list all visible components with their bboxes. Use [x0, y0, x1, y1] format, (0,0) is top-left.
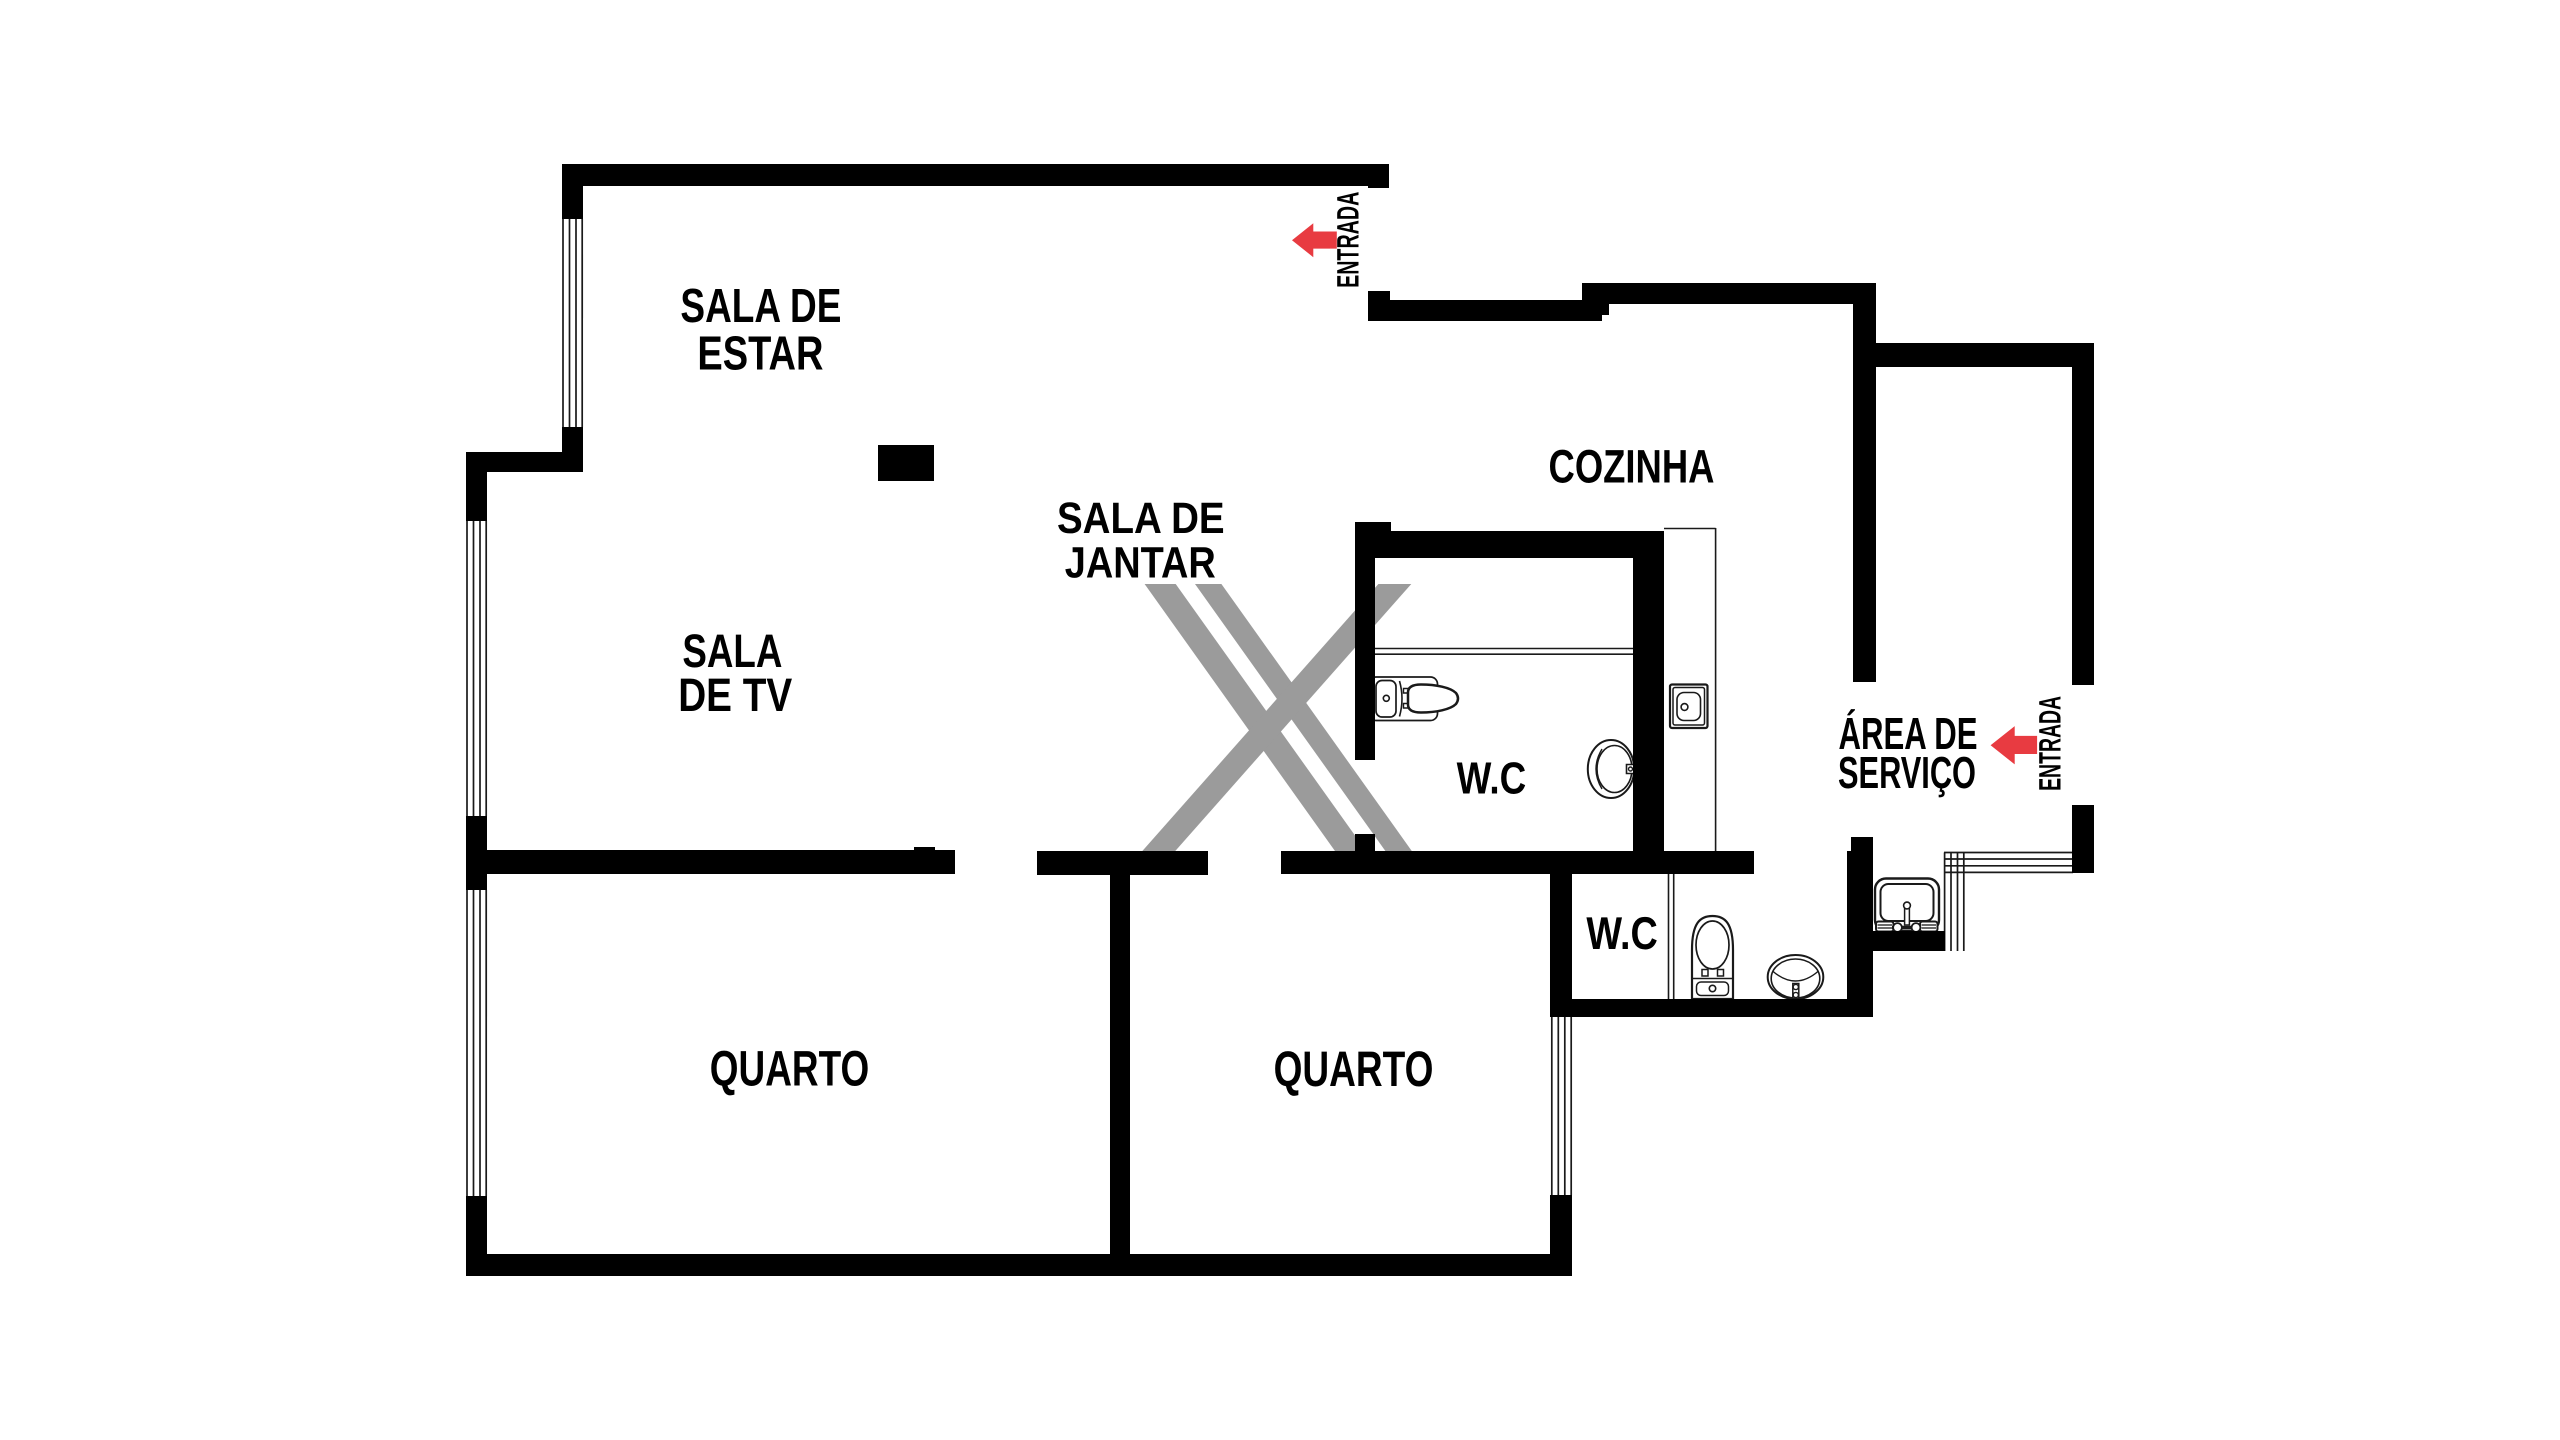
svg-text:SALA DE: SALA DE	[680, 280, 841, 333]
svg-text:W.C: W.C	[1586, 907, 1657, 959]
svg-text:ENTRADA: ENTRADA	[2032, 696, 2067, 791]
svg-text:JANTAR: JANTAR	[1065, 539, 1216, 588]
svg-text:DE TV: DE TV	[678, 668, 793, 721]
svg-text:SALA DE: SALA DE	[1057, 494, 1225, 543]
svg-text:QUARTO: QUARTO	[710, 1040, 869, 1096]
svg-text:W.C: W.C	[1457, 753, 1527, 804]
svg-text:SERVIÇO: SERVIÇO	[1838, 747, 1976, 798]
svg-text:ESTAR: ESTAR	[697, 328, 823, 381]
svg-text:QUARTO: QUARTO	[1274, 1041, 1434, 1097]
svg-text:COZINHA: COZINHA	[1549, 439, 1715, 492]
